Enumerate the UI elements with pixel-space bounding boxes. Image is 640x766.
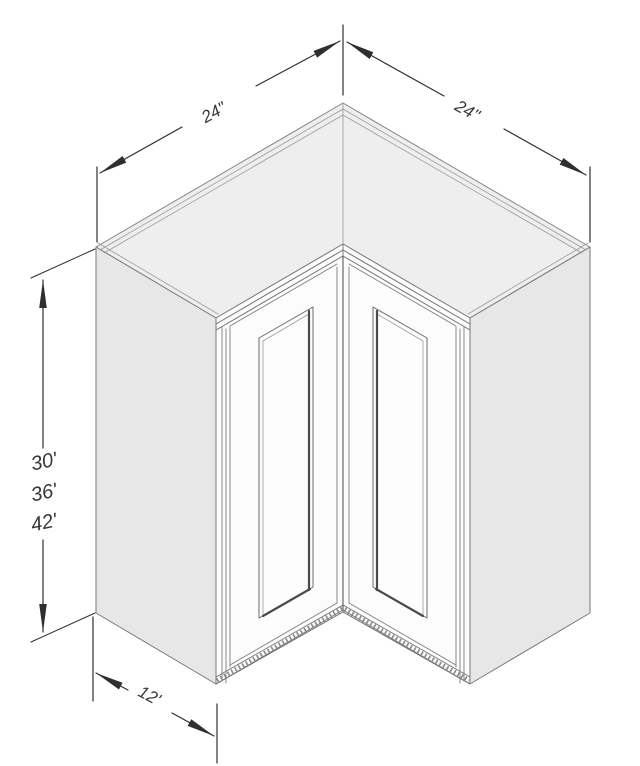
- cabinet-line-art: [0, 0, 640, 766]
- cabinet-right-side-panel: [470, 247, 590, 684]
- right-door-panel: [373, 307, 427, 618]
- extension-line-height-top: [31, 249, 95, 278]
- cabinet-drawing: [96, 103, 590, 684]
- corner-wall-cabinet-diagram: 24" 24" 30' 36' 42' 12': [0, 0, 640, 766]
- extension-line-height-bottom: [31, 613, 95, 642]
- left-door-panel: [259, 307, 313, 618]
- cabinet-left-side-panel: [96, 247, 216, 684]
